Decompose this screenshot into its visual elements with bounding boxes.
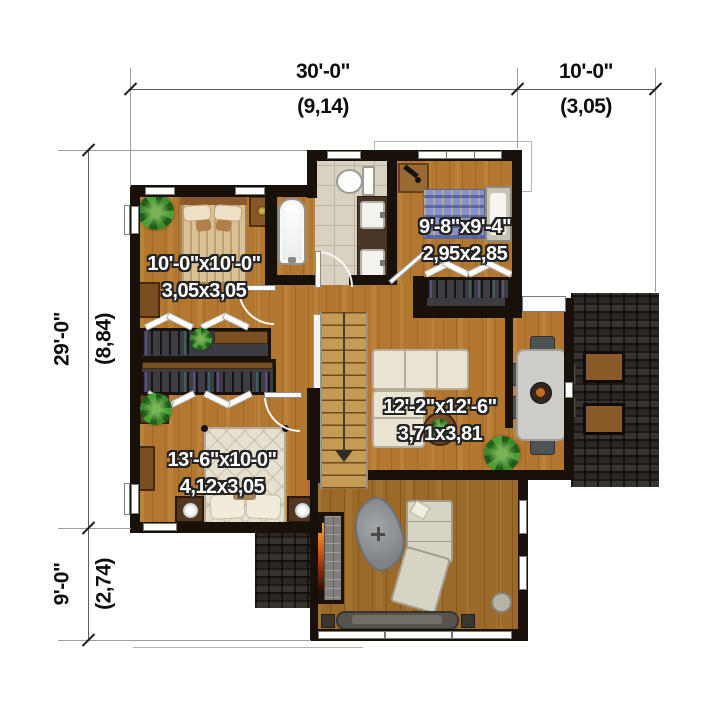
dimension-top2-feet: 10'-0": [559, 61, 613, 82]
accent-pillow: [195, 219, 211, 232]
room-label-m: 2,95x2,85: [423, 244, 507, 264]
dimension-top-meters: (9,14): [297, 96, 349, 117]
speaker: [321, 614, 335, 628]
wall-family-left: [310, 479, 318, 640]
plant-icon: [484, 436, 520, 472]
closet-shelf: [214, 331, 268, 344]
bifold-door: [205, 393, 251, 406]
wall-bedroom-tr-right: [512, 150, 522, 310]
toilet-tank: [362, 166, 375, 196]
wall-bathroom-bottom-a: [277, 275, 317, 285]
room-label-ft: 10'-0"x10'-0": [147, 254, 260, 274]
window: [143, 523, 177, 531]
window-mullion: [384, 631, 386, 639]
skylight: [583, 403, 625, 435]
lamp: [294, 502, 311, 519]
window-sill: [124, 205, 130, 235]
plant-icon: [190, 328, 212, 350]
dimension-line-left: [88, 150, 89, 641]
bifold-door: [202, 315, 248, 328]
window: [145, 187, 175, 195]
bed-headboard: [180, 196, 247, 205]
room-label-ft: 9'-8"x9'-4": [419, 217, 511, 237]
bathtub: [278, 198, 306, 265]
window-mullion: [451, 631, 453, 639]
wall-family-top: [368, 470, 573, 480]
extension-line: [655, 68, 656, 292]
roof-patch-right: [571, 293, 659, 487]
roofline-edge: [133, 647, 363, 648]
closet-hangers: [142, 331, 190, 355]
floor-plan-canvas: 30'-0" (9,14) 10'-0" (3,05) 29'-0" (8,84…: [0, 0, 720, 720]
window-mullion: [474, 151, 475, 159]
dimension-top2-meters: (3,05): [560, 96, 612, 117]
window: [519, 556, 527, 590]
closet-shelf: [142, 362, 273, 369]
door-leaf: [264, 392, 302, 398]
round-side-table: [491, 592, 512, 613]
room-label-ft: 12'-2"x12'-6": [383, 397, 496, 417]
sofa-back-section: [372, 349, 469, 390]
closet-hangers: [142, 372, 273, 392]
plant-icon: [140, 393, 172, 425]
stair-centerline: [343, 312, 345, 460]
window-mullion: [446, 151, 447, 159]
plant-icon: [138, 194, 174, 230]
lamp: [182, 502, 199, 519]
dining-chair: [530, 439, 555, 455]
speaker: [461, 614, 475, 628]
extension-line: [58, 150, 307, 151]
wall-bedroom-bath: [265, 185, 277, 285]
window: [519, 500, 527, 534]
desk-item: [415, 177, 421, 183]
dimension-top-feet: 30'-0": [296, 61, 350, 82]
window: [327, 151, 361, 159]
window: [318, 631, 512, 639]
roof-patch-bottom-left: [255, 532, 318, 608]
wall-family-right: [518, 470, 528, 640]
wall-bedroom-bl-right: [310, 388, 320, 483]
extension-line: [58, 528, 131, 529]
extension-line: [517, 68, 518, 148]
sink-faucet: [380, 212, 385, 218]
dimension-side2-meters: (2,74): [94, 558, 115, 610]
stair-down-arrow-icon: [335, 450, 353, 462]
window-well: [522, 296, 566, 312]
door-to-roof: [565, 382, 573, 398]
window: [131, 206, 139, 234]
window: [131, 484, 139, 514]
extension-line: [58, 640, 311, 641]
bed-post: [201, 425, 208, 432]
wall-bathroom-right: [387, 150, 397, 285]
tub-faucet: [288, 257, 296, 263]
room-label-m: 3,05x3,05: [162, 281, 246, 301]
toilet-bowl: [336, 169, 363, 194]
sink-faucet: [380, 260, 385, 266]
tv-screen: [352, 615, 442, 624]
accent-pillow: [215, 219, 231, 232]
dimension-side-meters: (8,84): [94, 313, 115, 365]
wall-living-dining-divider: [505, 298, 513, 428]
room-label-m: 3,71x3,81: [398, 424, 482, 444]
dimension-line-top: [130, 89, 656, 90]
dimension-side2-feet: 9'-0": [52, 563, 73, 606]
closet-hangers: [427, 280, 509, 298]
fruit-bowl: [536, 388, 545, 397]
window-sill: [124, 483, 130, 515]
window: [418, 151, 502, 159]
window: [235, 187, 265, 195]
ceiling-fan-mark: [371, 533, 385, 536]
skylight: [583, 351, 625, 383]
wall-outer-left: [130, 185, 140, 532]
dimension-side-feet: 29'-0": [52, 312, 73, 366]
door-leaf: [315, 251, 321, 288]
fireplace-stone: [324, 516, 341, 600]
room-label-ft: 13'-6"x10-0": [168, 450, 277, 470]
room-label-m: 4,12x3,05: [180, 477, 264, 497]
